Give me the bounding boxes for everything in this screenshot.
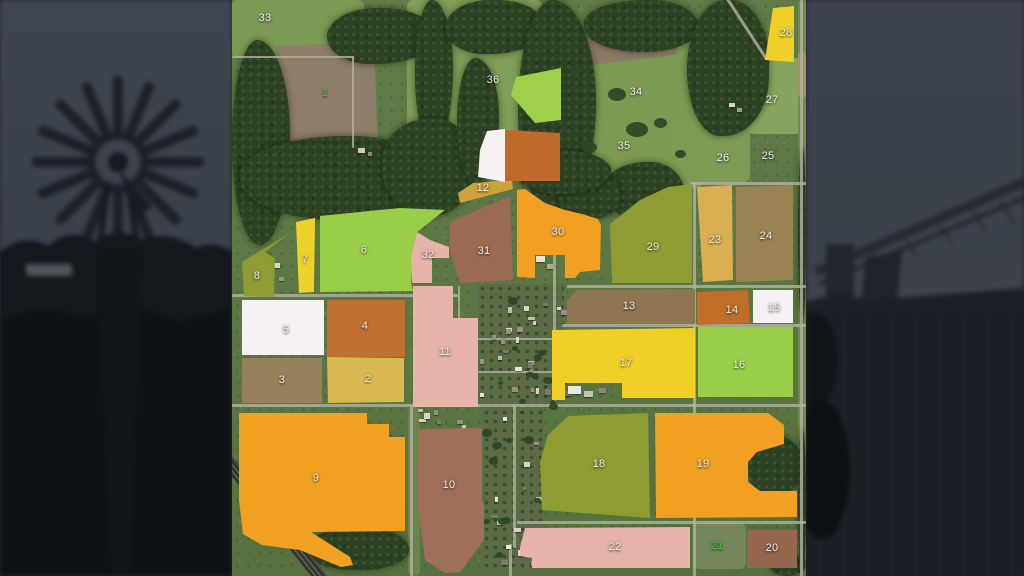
farm-building bbox=[368, 152, 372, 156]
field-label-11: 11 bbox=[439, 346, 451, 358]
field-label-27: 27 bbox=[766, 94, 779, 106]
village-house bbox=[528, 362, 533, 368]
tree-clump bbox=[508, 297, 518, 305]
field-label-2: 2 bbox=[365, 373, 371, 385]
field-label-32: 32 bbox=[422, 249, 435, 261]
screenshot-stage: 1234567891011121314151617181920212223242… bbox=[0, 0, 1024, 576]
village-house bbox=[543, 303, 548, 306]
field-label-24: 24 bbox=[760, 230, 773, 242]
village-house bbox=[528, 317, 535, 321]
windmill-icon bbox=[0, 0, 232, 576]
tree-clump bbox=[519, 399, 526, 404]
tree-clump bbox=[483, 519, 489, 524]
village-house bbox=[419, 419, 426, 423]
tree-clump bbox=[543, 377, 553, 385]
village-house bbox=[531, 388, 534, 392]
village-house bbox=[424, 413, 430, 419]
tree-clump bbox=[538, 350, 546, 356]
village-house bbox=[506, 329, 512, 335]
road bbox=[562, 324, 806, 327]
village-house bbox=[545, 389, 552, 395]
tree-clump bbox=[570, 66, 581, 75]
backdrop-left bbox=[0, 0, 232, 576]
field-label-22: 22 bbox=[609, 541, 622, 553]
tree-clump bbox=[482, 429, 492, 437]
field-label-19: 19 bbox=[697, 458, 710, 470]
forest-patch bbox=[584, 0, 699, 52]
village-house bbox=[534, 442, 540, 445]
field-label-23: 23 bbox=[709, 234, 722, 246]
road bbox=[567, 285, 806, 288]
field-label-29: 29 bbox=[647, 241, 660, 253]
field-label-7: 7 bbox=[302, 254, 308, 266]
tree-clump bbox=[512, 346, 518, 351]
village-house bbox=[501, 338, 505, 344]
field-label-13: 13 bbox=[623, 300, 636, 312]
village-house bbox=[503, 350, 508, 354]
backdrop-right bbox=[806, 0, 1024, 576]
village-house bbox=[508, 307, 511, 313]
village-house bbox=[457, 420, 463, 424]
field-label-1: 1 bbox=[322, 87, 328, 99]
field-label-5: 5 bbox=[283, 324, 289, 336]
village-house bbox=[492, 335, 496, 339]
field-label-14: 14 bbox=[726, 304, 739, 316]
village-house bbox=[524, 462, 530, 466]
village-house bbox=[503, 417, 506, 421]
farm-building bbox=[584, 391, 593, 397]
field-label-25: 25 bbox=[762, 150, 775, 162]
farm-building bbox=[279, 277, 284, 281]
village-house bbox=[501, 560, 508, 565]
village-house bbox=[495, 497, 498, 502]
village-ground bbox=[478, 284, 564, 408]
field-label-26: 26 bbox=[717, 152, 730, 164]
tree-clump bbox=[498, 381, 503, 385]
village-house bbox=[506, 545, 511, 549]
village-house bbox=[514, 528, 521, 532]
field-label-33: 33 bbox=[259, 12, 272, 24]
field-label-6: 6 bbox=[361, 244, 367, 256]
road bbox=[232, 404, 806, 407]
tree-clump bbox=[626, 122, 648, 137]
village-house bbox=[515, 367, 522, 371]
farm-building bbox=[737, 108, 742, 112]
village-house bbox=[561, 310, 567, 315]
village-house bbox=[523, 487, 526, 490]
village-house bbox=[418, 409, 423, 412]
field-label-17: 17 bbox=[620, 357, 633, 369]
field-label-8: 8 bbox=[254, 270, 260, 282]
village-house bbox=[536, 388, 539, 393]
road bbox=[517, 521, 806, 524]
village-house bbox=[491, 515, 498, 518]
tree-clump bbox=[654, 118, 667, 128]
tree-clump bbox=[608, 88, 626, 101]
road bbox=[690, 182, 806, 185]
village-house bbox=[480, 393, 484, 397]
village-house bbox=[533, 321, 536, 325]
grain-elevator-icon bbox=[806, 0, 1024, 576]
field-label-10: 10 bbox=[443, 479, 456, 491]
tree-clump bbox=[675, 150, 686, 158]
field-label-21: 21 bbox=[711, 540, 724, 552]
field-label-9: 9 bbox=[313, 472, 319, 484]
village-house bbox=[524, 306, 529, 311]
road bbox=[232, 56, 354, 58]
field-label-30: 30 bbox=[552, 226, 565, 238]
field-label-35: 35 bbox=[618, 140, 631, 152]
field-label-28: 28 bbox=[780, 27, 793, 39]
village-house bbox=[516, 337, 520, 343]
village-house bbox=[512, 387, 518, 392]
farm-map[interactable]: 1234567891011121314151617181920212223242… bbox=[232, 0, 806, 576]
village-house bbox=[437, 420, 441, 424]
farm-building bbox=[599, 388, 606, 393]
farm-building bbox=[358, 148, 365, 153]
village-house bbox=[498, 356, 502, 360]
farm-building bbox=[536, 256, 545, 262]
village-house bbox=[480, 359, 484, 364]
road bbox=[352, 56, 354, 148]
field-label-31: 31 bbox=[478, 245, 491, 257]
tree-clump bbox=[531, 373, 539, 379]
farm-building bbox=[729, 103, 735, 107]
farm-building bbox=[568, 386, 581, 394]
field-label-4: 4 bbox=[362, 320, 368, 332]
tree-clump bbox=[582, 142, 597, 153]
tree-clump bbox=[524, 436, 534, 444]
field-label-15: 15 bbox=[768, 302, 781, 314]
farm-building bbox=[547, 264, 553, 269]
field-label-16: 16 bbox=[733, 359, 746, 371]
field-label-34: 34 bbox=[630, 86, 643, 98]
village-house bbox=[434, 410, 438, 415]
field-label-3: 3 bbox=[279, 374, 285, 386]
road bbox=[513, 406, 516, 548]
field-label-20: 20 bbox=[766, 542, 779, 554]
forest-patch bbox=[687, 0, 769, 136]
road bbox=[800, 0, 803, 576]
field-label-36: 36 bbox=[487, 74, 500, 86]
tree-clump bbox=[489, 457, 498, 464]
road bbox=[410, 406, 413, 576]
village-house bbox=[517, 327, 523, 332]
field-label-12: 12 bbox=[477, 182, 490, 194]
field-label-18: 18 bbox=[593, 458, 606, 470]
village-house bbox=[557, 307, 560, 310]
